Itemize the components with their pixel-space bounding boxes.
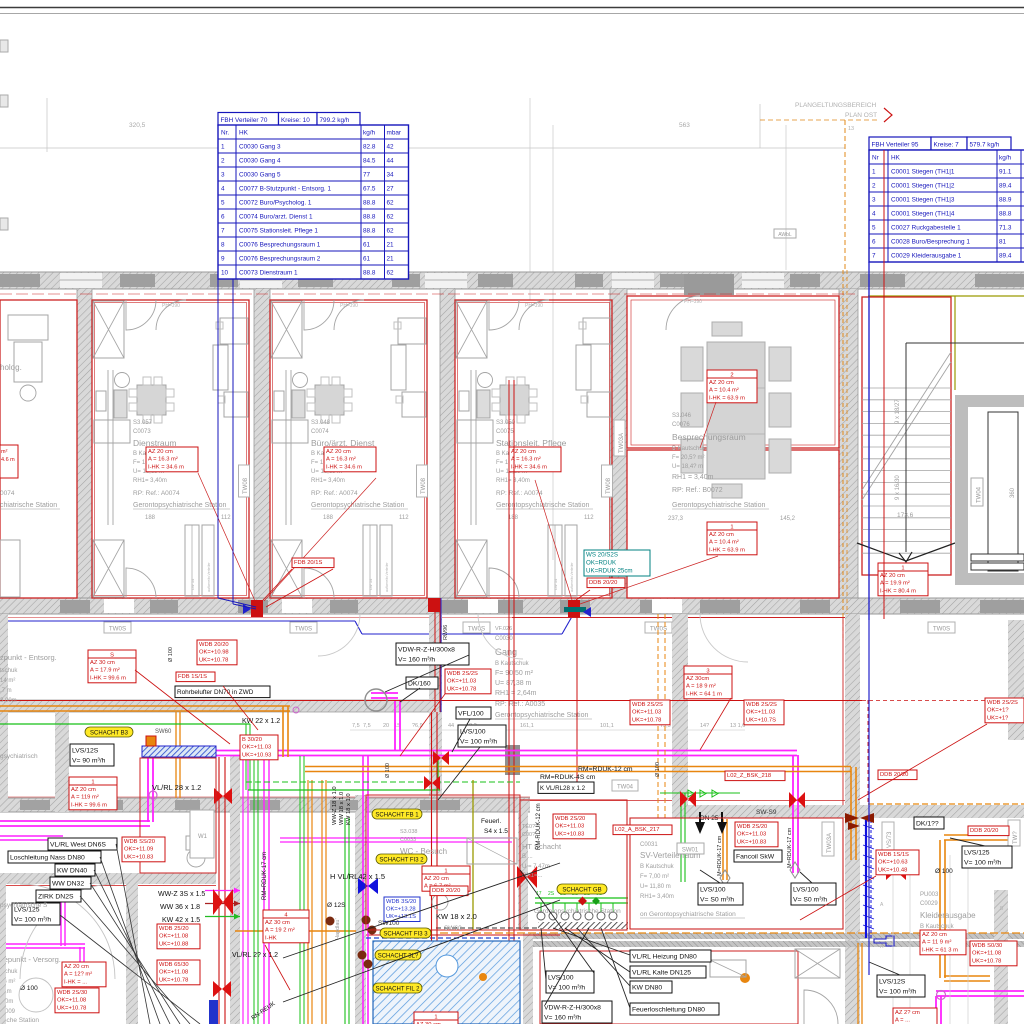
svg-text:L02_Z_BSK_218: L02_Z_BSK_218 xyxy=(727,773,771,779)
svg-text:1: 1 xyxy=(221,144,225,151)
svg-text:WDB 2S/2S: WDB 2S/2S xyxy=(987,700,1018,706)
svg-text:88.8: 88.8 xyxy=(363,214,376,221)
svg-text:B Kautschuk: B Kautschuk xyxy=(495,661,530,667)
svg-text:3,00m: 3,00m xyxy=(0,698,17,704)
svg-text:13: 13 xyxy=(848,126,854,132)
svg-text:8: 8 xyxy=(221,242,225,249)
svg-text:PH=J90: PH=J90 xyxy=(340,303,358,309)
svg-text:320,5: 320,5 xyxy=(129,122,146,129)
svg-text:LVS/125: LVS/125 xyxy=(964,850,990,857)
svg-text:F= 20,5? m²: F= 20,5? m² xyxy=(672,455,705,461)
svg-text:SW60: SW60 xyxy=(155,729,172,735)
svg-text:173,6: 173,6 xyxy=(897,512,914,519)
svg-text:LVS/12S: LVS/12S xyxy=(72,748,99,755)
svg-text:AZ 20 cm: AZ 20 cm xyxy=(922,932,947,938)
svg-text:SCHACHT FIL 2: SCHACHT FIL 2 xyxy=(375,987,420,993)
svg-text:C0076 Besprechungsraum 2: C0076 Besprechungsraum 2 xyxy=(239,256,321,263)
svg-text:89.4: 89.4 xyxy=(999,183,1012,190)
svg-text:B Kautschuk: B Kautschuk xyxy=(640,864,675,870)
svg-text:C0027 Ruckgabestelle 1: C0027 Ruckgabestelle 1 xyxy=(891,225,961,232)
svg-text:WW DN32: WW DN32 xyxy=(52,881,84,888)
svg-text:112: 112 xyxy=(399,515,409,521)
svg-text:9: 9 xyxy=(221,256,225,263)
svg-text:UK=+10.78: UK=+10.78 xyxy=(57,1005,86,1011)
svg-text:M=RDUK-17 cm: M=RDUK-17 cm xyxy=(717,835,723,876)
svg-text:zpunkt - Entsorg.: zpunkt - Entsorg. xyxy=(0,653,57,662)
svg-text:34: 34 xyxy=(387,172,395,179)
svg-text:2: 2 xyxy=(872,183,876,190)
svg-text:161,1: 161,1 xyxy=(520,723,534,729)
svg-text:RP: Ref.: A0035: RP: Ref.: A0035 xyxy=(495,701,545,708)
svg-text:I-HK = 99.6 m: I-HK = 99.6 m xyxy=(90,675,126,681)
svg-text:VFL/100: VFL/100 xyxy=(458,711,484,718)
svg-text:PH=J90: PH=J90 xyxy=(162,303,180,309)
svg-text:V= S0 m³/h: V= S0 m³/h xyxy=(793,897,827,904)
svg-text:A = 16.3 m²: A = 16.3 m² xyxy=(511,457,541,463)
svg-text:OK=+11.03: OK=+11.03 xyxy=(737,832,766,838)
svg-text:mbar: mbar xyxy=(387,130,402,137)
svg-text:RH1 = 2,64m: RH1 = 2,64m xyxy=(495,690,537,697)
svg-text:WDB 25/20: WDB 25/20 xyxy=(159,926,189,932)
svg-text:14?: 14? xyxy=(700,723,709,729)
svg-text:1: 1 xyxy=(872,169,876,176)
svg-text:Hapdlau’: Hapdlau’ xyxy=(335,918,341,940)
svg-text:I-HK = 80.4 m: I-HK = 80.4 m xyxy=(880,588,916,594)
svg-text:44: 44 xyxy=(387,158,395,165)
svg-text:AZ 20 cm: AZ 20 cm xyxy=(71,787,96,793)
svg-text:AZ 2? cm: AZ 2? cm xyxy=(895,1010,920,1016)
svg-text:RM=RDUK-17 cm: RM=RDUK-17 cm xyxy=(262,852,268,900)
svg-text:U = 7,47m: U = 7,47m xyxy=(522,864,550,870)
svg-text:WDB 20/20: WDB 20/20 xyxy=(199,642,229,648)
svg-text:88.8: 88.8 xyxy=(363,200,376,207)
svg-text:RM=RDUK-4S cm: RM=RDUK-4S cm xyxy=(540,774,596,781)
svg-text:K VL/RL28 x 1.2: K VL/RL28 x 1.2 xyxy=(540,785,586,792)
svg-text:Kreise: 7: Kreise: 7 xyxy=(934,142,960,149)
svg-text:Gerontopsychiatrische Station: Gerontopsychiatrische Station xyxy=(311,502,404,509)
svg-text:WDB 1S/1S: WDB 1S/1S xyxy=(878,852,909,858)
svg-text:Ø 12S: Ø 12S xyxy=(327,902,346,909)
svg-text:3: 3 xyxy=(221,172,225,179)
svg-text:aufbereitv.Verteiler: aufbereitv.Verteiler xyxy=(207,562,211,593)
svg-text:SW60: SW60 xyxy=(444,925,462,932)
svg-text:I-HK = 63.9 m: I-HK = 63.9 m xyxy=(709,395,745,401)
svg-text:Ø 100: Ø 100 xyxy=(20,985,38,992)
svg-text:RW96: RW96 xyxy=(443,625,449,640)
svg-text:OK=+11.03: OK=+11.03 xyxy=(555,824,584,830)
svg-text:B Kautschuk: B Kautschuk xyxy=(672,446,707,452)
svg-text:RP: Ref.: B0072: RP: Ref.: B0072 xyxy=(672,487,723,494)
svg-text:RP: Ref.: A0074: RP: Ref.: A0074 xyxy=(496,490,543,497)
svg-text:m²: m² xyxy=(1,449,8,455)
svg-text:145,2: 145,2 xyxy=(780,516,796,522)
svg-text:M=RDUK-17 cm: M=RDUK-17 cm xyxy=(787,827,793,868)
svg-text:2S: 2S xyxy=(548,891,555,897)
svg-text:A = 12? m²: A = 12? m² xyxy=(64,972,92,978)
svg-text:PH=J90: PH=J90 xyxy=(684,299,702,305)
svg-text:62: 62 xyxy=(387,228,395,235)
svg-text:S3.038: S3.038 xyxy=(400,829,417,835)
svg-text:zepunkt - Versorg.: zepunkt - Versorg. xyxy=(0,955,61,964)
svg-text:5: 5 xyxy=(872,225,876,232)
svg-text:OK=+13.28: OK=+13.28 xyxy=(386,907,416,913)
svg-text:44: 44 xyxy=(448,723,454,729)
svg-text:4: 4 xyxy=(872,211,876,218)
svg-text:KW 42 x 1.5: KW 42 x 1.5 xyxy=(162,917,200,924)
svg-text:LVS/100: LVS/100 xyxy=(700,887,726,894)
svg-text:SCHACHT GB: SCHACHT GB xyxy=(562,888,601,894)
svg-text:F= 7,00 m²: F= 7,00 m² xyxy=(640,874,669,880)
svg-text:SW-S9: SW-S9 xyxy=(756,809,777,816)
svg-text:OK=+10.63: OK=+10.63 xyxy=(878,860,908,866)
svg-text:I-HK = 63.9 m: I-HK = 63.9 m xyxy=(709,547,745,553)
svg-text:WDB 3S/20: WDB 3S/20 xyxy=(386,899,416,905)
svg-text:RM=RDUK-12 cm: RM=RDUK-12 cm xyxy=(578,766,633,773)
svg-text:UK=+10.93: UK=+10.93 xyxy=(242,752,271,758)
svg-text:I-HK: I-HK xyxy=(265,935,277,941)
svg-text:Feuerl.: Feuerl. xyxy=(481,818,501,825)
svg-text:B 30/20: B 30/20 xyxy=(242,737,262,743)
svg-text:C0030: C0030 xyxy=(495,636,513,642)
svg-text:aufbereitv.Verteiler: aufbereitv.Verteiler xyxy=(385,562,389,593)
svg-text:kg/h: kg/h xyxy=(363,130,376,137)
svg-text:I-HK = 99.6 m: I-HK = 99.6 m xyxy=(71,802,107,808)
svg-text:KW 18 x 1.0: KW 18 x 1.0 xyxy=(346,793,352,825)
svg-text:VL/RL Kalte DN125: VL/RL Kalte DN125 xyxy=(632,970,691,977)
svg-text:101,1: 101,1 xyxy=(600,723,614,729)
svg-text:A = 17.9 m²: A = 17.9 m² xyxy=(90,668,120,674)
svg-text:Gerontopsychiatrische Station: Gerontopsychiatrische Station xyxy=(534,908,621,915)
svg-text:I-HK = ...: I-HK = ... xyxy=(64,979,87,985)
svg-text:WW-Z 18 x 1.0: WW-Z 18 x 1.0 xyxy=(332,786,338,825)
svg-text:B Kautschuk: B Kautschuk xyxy=(920,924,955,930)
svg-text:4: 4 xyxy=(221,186,225,193)
svg-text:I-HK = 64 1 m: I-HK = 64 1 m xyxy=(686,691,722,697)
svg-text:ZIRK DN2S: ZIRK DN2S xyxy=(38,894,74,901)
svg-text:V= 100 m³/h: V= 100 m³/h xyxy=(460,739,497,746)
svg-text:A = 16.3 m²: A = 16.3 m² xyxy=(326,457,356,463)
svg-text:62: 62 xyxy=(387,214,395,221)
svg-text:67.5: 67.5 xyxy=(363,186,376,193)
svg-text:579.7 kg/h: 579.7 kg/h xyxy=(970,142,1000,149)
svg-text:WDB 2S/20: WDB 2S/20 xyxy=(555,816,585,822)
svg-text:Ø 100: Ø 100 xyxy=(168,647,174,662)
svg-text:UK=+10.83: UK=+10.83 xyxy=(737,839,766,845)
svg-text:Ø 100: Ø 100 xyxy=(935,868,953,875)
svg-text:A = 19 2 m²: A = 19 2 m² xyxy=(265,928,295,934)
svg-text:UK=+10.78: UK=+10.78 xyxy=(159,977,188,983)
svg-text:Nr: Nr xyxy=(872,155,880,162)
svg-text:88.8: 88.8 xyxy=(363,228,376,235)
svg-text:FDB 1S/1S: FDB 1S/1S xyxy=(178,674,207,680)
svg-text:C0074: C0074 xyxy=(311,429,329,435)
svg-text:81: 81 xyxy=(999,239,1007,246)
svg-text:Feuerloschleitung DN80: Feuerloschleitung DN80 xyxy=(632,1007,705,1014)
svg-text:LW 14: LW 14 xyxy=(553,578,558,590)
svg-text:PH=J90: PH=J90 xyxy=(525,303,543,309)
svg-text:71.3: 71.3 xyxy=(999,225,1012,232)
svg-text:WDB SS/20: WDB SS/20 xyxy=(124,839,155,845)
svg-text:KW 18 x 2.0: KW 18 x 2.0 xyxy=(436,912,477,921)
svg-text:61: 61 xyxy=(363,256,371,263)
svg-text:TW0S: TW0S xyxy=(933,626,950,633)
svg-text:AZ 20 cm: AZ 20 cm xyxy=(64,964,89,970)
svg-text:7,5: 7,5 xyxy=(363,723,371,729)
svg-text:TW0S: TW0S xyxy=(468,626,485,633)
svg-text:TW?: TW? xyxy=(1013,831,1019,844)
svg-text:13 1,6: 13 1,6 xyxy=(730,723,745,729)
svg-text:TW08: TW08 xyxy=(243,477,249,494)
svg-text:on Gerontopsychiatrische Stati: on Gerontopsychiatrische Station xyxy=(640,911,736,918)
svg-text:VL/RL 28 x 1.2: VL/RL 28 x 1.2 xyxy=(152,783,201,792)
svg-text:UK=RDUK 25cm: UK=RDUK 25cm xyxy=(586,568,633,575)
svg-text:tschuk: tschuk xyxy=(0,668,18,674)
svg-text:LW 14: LW 14 xyxy=(368,578,373,590)
svg-text:DK/160: DK/160 xyxy=(408,681,431,688)
svg-text:I-HK = 61 3 m: I-HK = 61 3 m xyxy=(922,947,958,953)
svg-text:UK=+10.78: UK=+10.78 xyxy=(632,717,661,723)
svg-text:U= 87,38 m: U= 87,38 m xyxy=(495,680,532,687)
svg-text:C0074 Buro/arzt. Dienst 1: C0074 Buro/arzt. Dienst 1 xyxy=(239,214,313,221)
svg-text:AZ 20 cm: AZ 20 cm xyxy=(326,449,351,455)
svg-text:KW 22 x 1.2: KW 22 x 1.2 xyxy=(242,718,280,725)
svg-text:PU003: PU003 xyxy=(920,892,939,898)
svg-text:C0077 B-Stutzpunkt - Entsorg.: C0077 B-Stutzpunkt - Entsorg. 1 xyxy=(239,186,331,193)
svg-text:C0072 Buro/Psycholog. 1: C0072 Buro/Psycholog. 1 xyxy=(239,200,312,207)
svg-text:Kreise: 10: Kreise: 10 xyxy=(281,117,310,124)
svg-text:C0033: C0033 xyxy=(400,837,416,843)
svg-text:OK=+11.08: OK=+11.08 xyxy=(972,951,1001,957)
svg-text:.7 m: .7 m xyxy=(0,688,12,694)
svg-text:psychiatrische S: psychiatrische S xyxy=(0,902,48,909)
svg-text:WDB 2S/2S: WDB 2S/2S xyxy=(746,702,777,708)
svg-text:WW 18 x 1.0: WW 18 x 1.0 xyxy=(339,792,345,825)
svg-text:B ...: B ... xyxy=(522,854,533,860)
svg-text:SCHACHT FI3 3: SCHACHT FI3 3 xyxy=(383,932,428,938)
svg-text:C0001 Stiegen (TH1|4: C0001 Stiegen (TH1|4 xyxy=(891,211,955,218)
svg-text:AWbL: AWbL xyxy=(778,232,792,238)
svg-text:V= 100 m³/h: V= 100 m³/h xyxy=(14,917,51,924)
svg-text:VDW-R-Z-H/300x8: VDW-R-Z-H/300x8 xyxy=(398,647,455,654)
svg-text:OK=+11.08: OK=+11.08 xyxy=(57,998,86,1004)
svg-text:RH1= 3,40m: RH1= 3,40m xyxy=(133,478,167,484)
svg-text:SCHACHT FB 1: SCHACHT FB 1 xyxy=(375,813,419,819)
svg-text:LW 14: LW 14 xyxy=(190,578,195,590)
svg-text:6: 6 xyxy=(872,239,876,246)
svg-text:C0001 Stiegen (TH1|2: C0001 Stiegen (TH1|2 xyxy=(891,183,955,190)
svg-text:TW04: TW04 xyxy=(617,785,634,791)
svg-text:TW04: TW04 xyxy=(977,486,983,503)
svg-text:TE0?: TE0? xyxy=(522,824,535,830)
svg-text:holog.: holog. xyxy=(0,363,22,372)
svg-text:gsychiatrisch: gsychiatrisch xyxy=(0,753,38,760)
svg-text:RP: Ref.: A0074: RP: Ref.: A0074 xyxy=(133,490,180,497)
svg-text:188: 188 xyxy=(323,515,334,521)
svg-text:WDB 2S/30: WDB 2S/30 xyxy=(57,990,87,996)
svg-text:Ø 100: Ø 100 xyxy=(655,762,661,777)
svg-text:C0028 Buro/Besprechung 1: C0028 Buro/Besprechung 1 xyxy=(891,239,970,246)
svg-text:AZ 30 cm: AZ 30 cm xyxy=(90,660,115,666)
svg-text:V= 90 m³/h: V= 90 m³/h xyxy=(72,758,106,765)
svg-text:V= S0 m³/h: V= S0 m³/h xyxy=(700,897,734,904)
svg-text:OK=+1?: OK=+1? xyxy=(987,708,1009,714)
svg-text:799.2 kg/h: 799.2 kg/h xyxy=(320,117,350,124)
svg-text:UK=+10.88: UK=+10.88 xyxy=(159,941,188,947)
svg-text:KW DN80: KW DN80 xyxy=(632,985,662,992)
svg-text:U= 11,80 m: U= 11,80 m xyxy=(640,884,671,890)
svg-text:RH1= 3,40m: RH1= 3,40m xyxy=(311,478,345,484)
svg-text:91.1: 91.1 xyxy=(999,169,1012,176)
svg-text:188: 188 xyxy=(508,515,519,521)
svg-text:62: 62 xyxy=(387,200,395,207)
svg-text:360: 360 xyxy=(1010,487,1016,498)
svg-text:5: 5 xyxy=(221,200,225,207)
svg-text:27: 27 xyxy=(387,186,395,193)
svg-text:C0029: C0029 xyxy=(920,901,938,907)
svg-text:S3.057: S3.057 xyxy=(133,420,153,426)
svg-text:Gerontopsychiatrische Station: Gerontopsychiatrische Station xyxy=(672,502,765,509)
svg-text:89.4: 89.4 xyxy=(999,253,1012,260)
svg-text:C0075 Stationsleit. Pflege 1: C0075 Stationsleit. Pflege 1 xyxy=(239,228,318,235)
svg-text:FBH Verteiler 95: FBH Verteiler 95 xyxy=(872,142,919,149)
svg-text:PLAN OST: PLAN OST xyxy=(845,112,877,119)
svg-text:UK=+10.83: UK=+10.83 xyxy=(124,854,153,860)
svg-text:82.8: 82.8 xyxy=(363,144,376,151)
svg-text:RH1=...: RH1=... xyxy=(522,873,543,879)
svg-text:kg/h: kg/h xyxy=(999,155,1012,162)
svg-text:HK: HK xyxy=(891,155,901,162)
svg-text:chiatrische Station: chiatrische Station xyxy=(0,502,57,509)
svg-text:237,3: 237,3 xyxy=(668,516,684,522)
svg-text:VDW-R-Z-H/300x8: VDW-R-Z-H/300x8 xyxy=(544,1005,601,1012)
svg-text:UK=+10.83: UK=+10.83 xyxy=(555,831,584,837)
svg-text:OK=+11.09: OK=+11.09 xyxy=(124,847,153,853)
svg-text:S3.046: S3.046 xyxy=(672,413,692,419)
svg-text:C0001 Stiegen (TH1|1: C0001 Stiegen (TH1|1 xyxy=(891,169,955,176)
svg-text:H VL/RL42 x 1.5: H VL/RL42 x 1.5 xyxy=(330,872,385,881)
svg-text:TW0S: TW0S xyxy=(295,626,312,633)
svg-text:42: 42 xyxy=(387,144,395,151)
svg-text:HK: HK xyxy=(239,130,249,137)
svg-text:2: 2 xyxy=(221,158,225,165)
svg-text:WDB 65/30: WDB 65/30 xyxy=(159,962,189,968)
svg-text:Rohrbelufter DN70 in ZWD: Rohrbelufter DN70 in ZWD xyxy=(177,689,254,696)
svg-text:SCHACHT B3: SCHACHT B3 xyxy=(90,731,129,737)
svg-text:RH1 = 3,40m: RH1 = 3,40m xyxy=(672,474,714,481)
svg-text:UK=+10.78: UK=+10.78 xyxy=(972,958,1001,964)
svg-text:C0076: C0076 xyxy=(672,422,690,428)
svg-text:V= 100 m³/h: V= 100 m³/h xyxy=(879,989,916,996)
svg-text:AZ 20 cm: AZ 20 cm xyxy=(424,876,449,882)
svg-text:C0030 Gang 3: C0030 Gang 3 xyxy=(239,144,281,151)
svg-text:S3.048: S3.048 xyxy=(311,420,331,426)
svg-text:61: 61 xyxy=(363,242,371,249)
svg-text:AZ 30 cm: AZ 30 cm xyxy=(265,920,290,926)
svg-text:LVS/100: LVS/100 xyxy=(793,887,819,894)
svg-text:C0030 Gang 4: C0030 Gang 4 xyxy=(239,158,281,165)
svg-text:OK=+11.03: OK=+11.03 xyxy=(242,745,271,751)
svg-text:KW DN40: KW DN40 xyxy=(57,868,87,875)
svg-text:TW03A: TW03A xyxy=(619,433,625,453)
svg-text:84.5: 84.5 xyxy=(363,158,376,165)
svg-text:62: 62 xyxy=(387,270,395,277)
svg-text:Loschleitung Nass DN80: Loschleitung Nass DN80 xyxy=(10,855,85,862)
svg-text:FDB 20/1S: FDB 20/1S xyxy=(294,560,322,566)
svg-text:WW-Z 3S x 1.5: WW-Z 3S x 1.5 xyxy=(158,891,205,898)
svg-text:RH1= 3,40m: RH1= 3,40m xyxy=(496,478,530,484)
svg-text:112: 112 xyxy=(584,515,594,521)
svg-text:WDB 2S/2S: WDB 2S/2S xyxy=(447,671,478,677)
svg-text:7: 7 xyxy=(872,253,876,260)
svg-text:TW03A: TW03A xyxy=(827,833,833,853)
svg-text:W1: W1 xyxy=(198,834,208,840)
svg-text:TW08: TW08 xyxy=(606,477,612,494)
svg-text:A = ...: A = ... xyxy=(895,1018,910,1024)
svg-text:0074: 0074 xyxy=(0,490,15,497)
svg-text:S4 x 1.5: S4 x 1.5 xyxy=(484,828,508,835)
svg-text:WS 20/S2S: WS 20/S2S xyxy=(586,552,618,559)
svg-text:OK=RDUK: OK=RDUK xyxy=(586,560,617,567)
svg-text:PLANGELTUNGSBEREICH: PLANGELTUNGSBEREICH xyxy=(795,102,876,109)
svg-text:C0073 Dienstraum 1: C0073 Dienstraum 1 xyxy=(239,270,298,277)
svg-text:UK=+10.78: UK=+10.78 xyxy=(199,657,228,663)
svg-text:OK=+11.03: OK=+11.03 xyxy=(746,710,775,716)
svg-text:VS/73: VS/73 xyxy=(887,831,893,848)
svg-text:RM-RDUK-12 cm: RM-RDUK-12 cm xyxy=(536,803,542,850)
svg-text:20: 20 xyxy=(383,723,389,729)
svg-text:V= 100 m³/h: V= 100 m³/h xyxy=(964,860,1001,867)
svg-text:C0075: C0075 xyxy=(496,429,514,435)
svg-text:C0030 Gang 5: C0030 Gang 5 xyxy=(239,172,281,179)
svg-text:AZ 20 cm: AZ 20 cm xyxy=(709,380,734,386)
svg-text:A = 11 9 m²: A = 11 9 m² xyxy=(922,940,951,946)
svg-text:9 x 16/30: 9 x 16/30 xyxy=(895,475,901,500)
svg-text:OK=+11.03: OK=+11.03 xyxy=(447,679,476,685)
svg-text:WDB 2S/20: WDB 2S/20 xyxy=(737,824,767,830)
svg-text:C00?: C00? xyxy=(522,832,535,838)
svg-text:WW 36 x 1.8: WW 36 x 1.8 xyxy=(160,904,200,911)
svg-text:OK=+11.03: OK=+11.03 xyxy=(632,710,661,716)
svg-text:Nr.: Nr. xyxy=(221,130,229,137)
svg-text:RP: Ref.: A0074: RP: Ref.: A0074 xyxy=(311,490,358,497)
svg-text:77: 77 xyxy=(363,172,371,179)
svg-text:TW08: TW08 xyxy=(421,477,427,494)
svg-text:?6,9: ?6,9 xyxy=(412,723,423,729)
svg-text:C0001 Stiegen (TH1|3: C0001 Stiegen (TH1|3 xyxy=(891,197,955,204)
svg-text:563: 563 xyxy=(679,122,690,129)
svg-text:A = 16.3 m²: A = 16.3 m² xyxy=(148,457,178,463)
svg-text:U= 18,4? m: U= 18,4? m xyxy=(672,464,703,470)
svg-text:UK=+1?: UK=+1? xyxy=(987,715,1009,721)
svg-text:4.6 m: 4.6 m xyxy=(1,457,15,463)
svg-text:6: 6 xyxy=(221,214,225,221)
svg-text:DK/1??: DK/1?? xyxy=(916,821,939,828)
svg-text:88.8: 88.8 xyxy=(363,270,376,277)
svg-text:A = 10.4 m²: A = 10.4 m² xyxy=(709,388,739,394)
svg-text:Besprechungsraum: Besprechungsraum xyxy=(672,432,746,442)
svg-text:TW0S: TW0S xyxy=(109,626,126,633)
svg-text:9 x 18/27: 9 x 18/27 xyxy=(895,399,901,424)
svg-text:7: 7 xyxy=(221,228,225,235)
svg-text:SCHACHT FI3 2: SCHACHT FI3 2 xyxy=(379,858,424,864)
svg-text:UK=+10.7S: UK=+10.7S xyxy=(746,717,776,723)
svg-text:C0029 Kleiderausgabe 1: C0029 Kleiderausgabe 1 xyxy=(891,253,962,260)
svg-text:L02_A_BSK_217: L02_A_BSK_217 xyxy=(615,827,659,833)
svg-text:14 m²: 14 m² xyxy=(0,678,15,684)
svg-text:OK=+11.08: OK=+11.08 xyxy=(159,970,188,976)
svg-text:7,5: 7,5 xyxy=(352,723,360,729)
svg-text:V= 160 m³/h: V= 160 m³/h xyxy=(398,657,435,664)
